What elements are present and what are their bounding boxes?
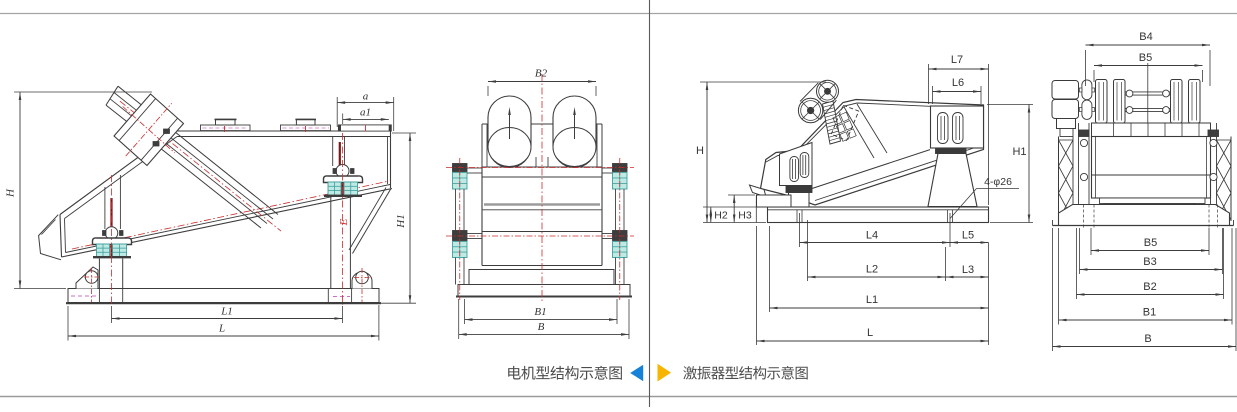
svg-text:L5: L5 bbox=[962, 230, 974, 242]
svg-text:B4: B4 bbox=[1139, 31, 1152, 43]
svg-text:B2: B2 bbox=[1143, 281, 1156, 293]
svg-text:H: H bbox=[5, 188, 17, 198]
svg-text:L1: L1 bbox=[220, 306, 233, 318]
svg-text:H2: H2 bbox=[714, 210, 728, 222]
svg-text:B1: B1 bbox=[1143, 307, 1156, 319]
svg-text:B2: B2 bbox=[535, 68, 548, 80]
svg-text:L: L bbox=[867, 327, 873, 339]
svg-text:E: E bbox=[338, 218, 350, 226]
svg-text:L2: L2 bbox=[866, 264, 878, 276]
svg-text:H: H bbox=[696, 145, 704, 157]
svg-text:L1: L1 bbox=[866, 294, 878, 306]
svg-text:L: L bbox=[218, 323, 225, 335]
svg-text:H1: H1 bbox=[395, 214, 407, 228]
svg-text:L6: L6 bbox=[952, 77, 964, 89]
svg-text:B: B bbox=[538, 321, 545, 333]
svg-text:a: a bbox=[363, 91, 369, 103]
svg-text:H3: H3 bbox=[738, 210, 752, 222]
svg-text:4-φ26: 4-φ26 bbox=[984, 176, 1012, 188]
svg-text:B5: B5 bbox=[1144, 237, 1157, 249]
svg-text:H1: H1 bbox=[1012, 146, 1026, 158]
svg-text:a1: a1 bbox=[360, 107, 371, 119]
svg-text:B: B bbox=[1144, 333, 1151, 345]
svg-text:B5: B5 bbox=[1139, 52, 1152, 64]
svg-text:B1: B1 bbox=[534, 306, 546, 318]
svg-text:L7: L7 bbox=[951, 54, 963, 66]
svg-text:B3: B3 bbox=[1143, 256, 1156, 268]
svg-text:L3: L3 bbox=[962, 264, 974, 276]
svg-text:L4: L4 bbox=[866, 230, 878, 242]
